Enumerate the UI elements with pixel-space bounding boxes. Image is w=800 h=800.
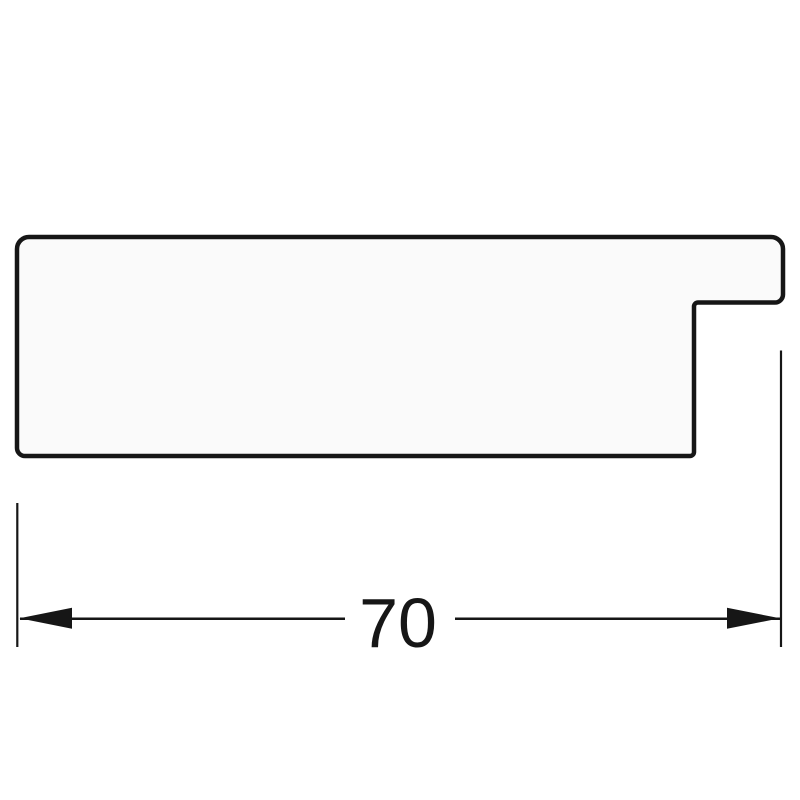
svg-text:70: 70 <box>359 584 437 662</box>
